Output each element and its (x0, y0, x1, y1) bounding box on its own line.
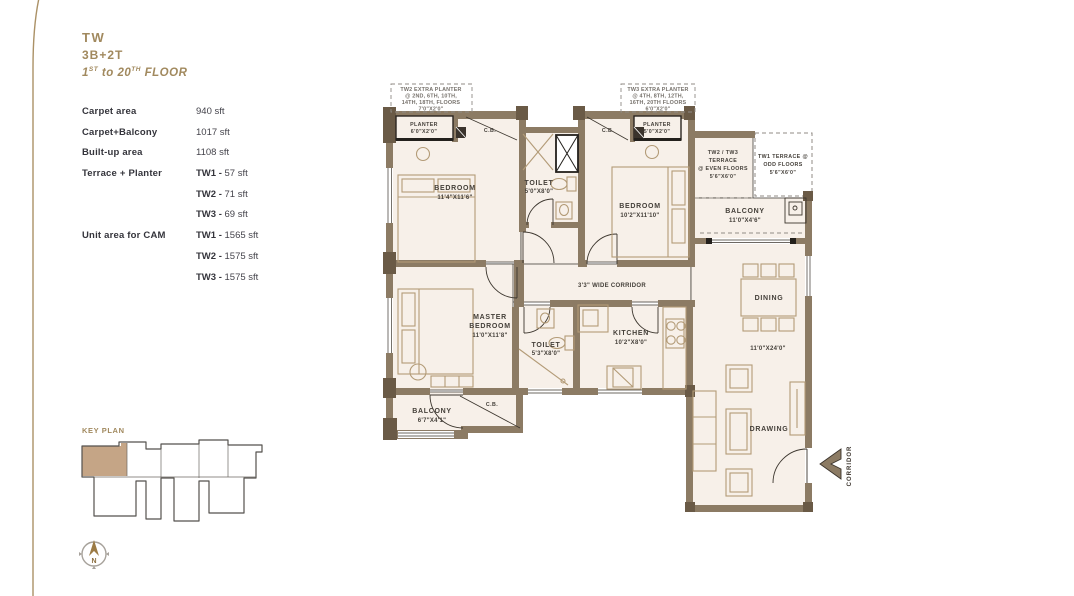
shaft (556, 135, 578, 172)
balcony-bl-label: BALCONY (412, 408, 452, 415)
svg-text:5'0"X2'0": 5'0"X2'0" (644, 129, 671, 135)
svg-text:11'0"X11'8": 11'0"X11'8" (472, 333, 507, 339)
master-bedroom-label: MASTER (473, 314, 507, 321)
svg-text:5'0"X8'0": 5'0"X8'0" (525, 189, 554, 195)
bedroom1-label: BEDROOM (434, 185, 475, 192)
brochure-page: TW 3B+2T 1ST to 20TH FLOOR Carpet area94… (0, 0, 1074, 596)
svg-text:11'0"X4'6": 11'0"X4'6" (729, 218, 761, 224)
svg-text:7'0"X2'0": 7'0"X2'0" (418, 107, 443, 113)
drawing-label: DRAWING (750, 426, 789, 433)
key-plan-drawing (82, 440, 262, 521)
svg-text:6'0"X2'0": 6'0"X2'0" (411, 129, 438, 135)
bedroom2-label: BEDROOM (619, 203, 660, 210)
plan-graphics: N (0, 0, 1074, 596)
key-plan-highlight-unit (82, 443, 127, 476)
svg-text:TERRACE: TERRACE (709, 158, 737, 164)
planter1-label: PLANTER (410, 122, 438, 128)
terrace1-label: TW1 TERRACE @ (758, 154, 808, 160)
svg-text:5'6"X6'0": 5'6"X6'0" (770, 170, 797, 176)
cb1-label: C.B. (484, 128, 496, 134)
svg-text:@ EVEN FLOORS: @ EVEN FLOORS (698, 166, 748, 172)
living-floor (691, 242, 807, 507)
entry-arrow-icon (820, 449, 841, 479)
dining-label: DINING (755, 295, 784, 302)
balcony-right-label: BALCONY (725, 208, 765, 215)
svg-text:5'3"X8'0": 5'3"X8'0" (532, 351, 561, 357)
svg-text:BEDROOM: BEDROOM (469, 323, 510, 330)
corridor-label: 3'3" WIDE CORRIDOR (578, 283, 646, 289)
svg-text:5'6"X6'0": 5'6"X6'0" (710, 174, 737, 180)
living-dim-label: 11'0"X24'0" (750, 346, 786, 352)
kitchen-label: KITCHEN (613, 330, 649, 337)
svg-text:@ 2ND, 6TH, 10TH,: @ 2ND, 6TH, 10TH, (405, 94, 457, 100)
svg-text:ODD FLOORS: ODD FLOORS (763, 162, 802, 168)
annotation-right: TW3 EXTRA PLANTER (627, 87, 688, 93)
planter2-label: PLANTER (643, 122, 671, 128)
cb2-label: C.B. (602, 128, 614, 134)
annotation-left: TW2 EXTRA PLANTER (400, 87, 461, 93)
svg-text:@ 4TH, 8TH, 12TH,: @ 4TH, 8TH, 12TH, (632, 94, 683, 100)
svg-text:10'2"X11'10": 10'2"X11'10" (620, 213, 659, 219)
cb3-label: C.B. (486, 402, 498, 408)
toilet2-label: TOILET (532, 342, 561, 349)
gold-border-line (33, 0, 39, 596)
svg-text:14TH, 18TH, FLOORS: 14TH, 18TH, FLOORS (402, 100, 461, 106)
svg-text:6'0"X2'0": 6'0"X2'0" (645, 107, 670, 113)
corridor-out-label: CORRIDOR (847, 446, 853, 487)
compass: N (79, 540, 109, 569)
svg-text:16TH, 20TH FLOORS: 16TH, 20TH FLOORS (630, 100, 687, 106)
svg-text:11'4"X11'6": 11'4"X11'6" (437, 195, 472, 201)
svg-text:6'7"X4'1": 6'7"X4'1" (418, 418, 447, 424)
terrace23-label: TW2 / TW3 (708, 150, 738, 156)
floor-plan: TW2 EXTRA PLANTER @ 2ND, 6TH, 10TH, 14TH… (383, 84, 853, 512)
svg-text:10'2"X8'0": 10'2"X8'0" (615, 340, 647, 346)
compass-north-label: N (91, 558, 96, 565)
toilet1-label: TOILET (525, 180, 554, 187)
planter1-box (396, 116, 453, 140)
